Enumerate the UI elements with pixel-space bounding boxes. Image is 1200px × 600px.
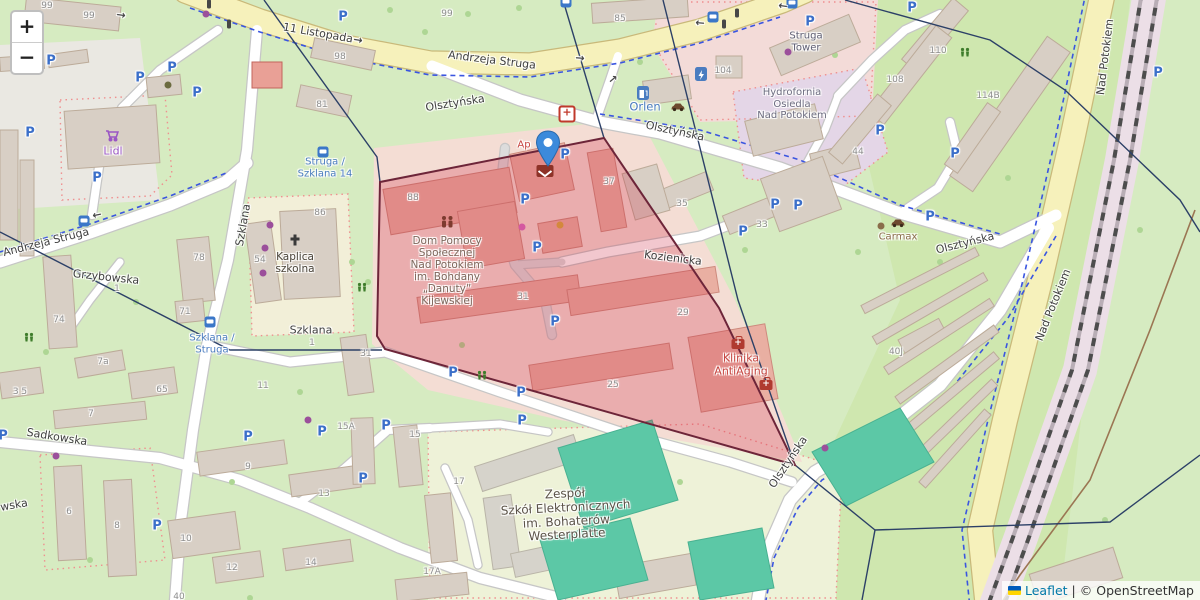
oneway-arrow-icon: → bbox=[695, 16, 705, 30]
house-number: 65 bbox=[156, 385, 167, 395]
parking-icon: P bbox=[516, 386, 526, 401]
poi-label: Ap bbox=[517, 139, 530, 151]
house-number: 13 bbox=[318, 489, 329, 499]
fuel-station-icon bbox=[637, 86, 649, 100]
church-cross-icon bbox=[294, 235, 297, 246]
house-number: 114B bbox=[976, 91, 999, 101]
playground-icon bbox=[24, 328, 35, 347]
parking-icon: P bbox=[520, 193, 530, 208]
street-label: Szklana bbox=[233, 203, 253, 247]
poi-dot bbox=[260, 270, 267, 277]
street-label: Nad Potokiem bbox=[1094, 18, 1116, 95]
map-canvas[interactable]: 11 ListopadaAndrzeja StrugaAndrzeja Stru… bbox=[0, 0, 1200, 600]
house-number: 14 bbox=[305, 558, 316, 568]
house-number: 98 bbox=[334, 52, 345, 62]
parking-icon: P bbox=[135, 71, 145, 86]
house-number: 6 bbox=[66, 507, 72, 517]
poi-label: Lidl bbox=[103, 146, 122, 159]
poi-dot bbox=[267, 222, 274, 229]
street-label: Olsztyńska bbox=[934, 229, 995, 256]
street-label: Olsztyńska bbox=[644, 118, 705, 143]
parking-icon: P bbox=[152, 519, 162, 534]
poi-label: Dom PomocySpołecznejNad Potokiemim. Bohd… bbox=[411, 235, 484, 307]
street-label: Andrzeja Struga bbox=[2, 225, 91, 259]
parking-icon: P bbox=[338, 10, 348, 25]
poi-label: ZespółSzkół Elektronicznychim. Bohaterów… bbox=[500, 484, 632, 546]
house-number: 8 bbox=[114, 521, 120, 531]
bus-stop-icon bbox=[708, 12, 719, 23]
poi-dot bbox=[203, 11, 210, 18]
house-number: 99 bbox=[41, 1, 52, 11]
street-label: Olsztyńska bbox=[425, 92, 486, 114]
parking-icon: P bbox=[805, 15, 815, 30]
street-label: Kozienicka bbox=[643, 248, 702, 268]
clinic-bag-icon: + bbox=[732, 339, 745, 349]
street-label: wska bbox=[0, 496, 29, 514]
oneway-arrow-icon: → bbox=[605, 71, 620, 87]
street-label: Nad Potokiem bbox=[1033, 267, 1074, 343]
parking-icon: P bbox=[1153, 66, 1163, 81]
attribution-separator: | bbox=[1072, 583, 1076, 598]
poi-dot bbox=[305, 417, 312, 424]
parking-icon: P bbox=[0, 429, 8, 444]
attribution-bar: Leaflet | © OpenStreetMap bbox=[1002, 581, 1200, 600]
poi-label: Struga /Szklana 14 bbox=[298, 157, 353, 180]
house-number: 17A bbox=[423, 567, 441, 577]
house-number: 29 bbox=[677, 308, 688, 318]
parking-icon: P bbox=[192, 86, 202, 101]
traffic-light-icon bbox=[735, 9, 739, 18]
oneway-arrow-icon: → bbox=[91, 208, 103, 223]
parking-icon: P bbox=[738, 225, 748, 240]
charging-station-icon bbox=[695, 67, 707, 81]
house-number: 54 bbox=[254, 255, 265, 265]
pharmacy-icon: + bbox=[559, 106, 576, 123]
poi-dot bbox=[785, 49, 792, 56]
house-number: 31 bbox=[517, 292, 528, 302]
car-repair-icon bbox=[891, 213, 906, 232]
house-number: 37 bbox=[603, 177, 614, 187]
house-number: 31 bbox=[360, 349, 371, 359]
house-number: 40J bbox=[889, 347, 903, 357]
parking-icon: P bbox=[358, 472, 368, 487]
bus-stop-icon bbox=[787, 0, 798, 9]
oneway-arrow-icon: → bbox=[352, 33, 363, 47]
traffic-light-icon bbox=[227, 20, 231, 29]
poi-dot bbox=[165, 82, 172, 89]
parking-icon: P bbox=[550, 315, 560, 330]
leaflet-link[interactable]: Leaflet bbox=[1025, 583, 1068, 598]
parking-icon: P bbox=[925, 210, 935, 225]
oneway-arrow-icon: → bbox=[575, 51, 585, 65]
house-number: 88 bbox=[407, 193, 418, 203]
parking-icon: P bbox=[950, 147, 960, 162]
house-number: 74 bbox=[53, 315, 64, 325]
street-label: 11 Listopada bbox=[282, 20, 354, 45]
house-number: 15A bbox=[337, 422, 355, 432]
street-label: Grzybowska bbox=[72, 267, 140, 287]
poi-dot bbox=[53, 453, 60, 460]
poi-dot bbox=[262, 245, 269, 252]
parking-icon: P bbox=[517, 414, 527, 429]
house-number: 1 bbox=[309, 338, 315, 348]
house-number: 10 bbox=[180, 534, 191, 544]
street-label: Olsztyńska bbox=[766, 434, 810, 491]
bus-stop-icon bbox=[79, 216, 90, 227]
clinic-bag-icon: + bbox=[760, 380, 773, 390]
poi-label: Kaplicaszkolna bbox=[275, 251, 314, 275]
openstreetmap-link[interactable]: © OpenStreetMap bbox=[1080, 583, 1194, 598]
house-number: 9 bbox=[245, 462, 251, 472]
house-number: 12 bbox=[226, 563, 237, 573]
poi-label: StrugaTower bbox=[789, 31, 822, 54]
traffic-light-icon bbox=[722, 20, 726, 29]
playground-icon bbox=[357, 278, 368, 297]
house-number: 33 bbox=[756, 220, 767, 230]
house-number: 78 bbox=[193, 253, 204, 263]
poi-label: KlinikaAntiAging bbox=[714, 352, 767, 377]
poi-label: HydroforniaOsiedlaNad Potokiem bbox=[757, 87, 826, 122]
house-number: 7 bbox=[88, 409, 94, 419]
marker-pin-icon bbox=[535, 130, 561, 168]
parking-icon: P bbox=[46, 54, 56, 69]
ukraine-flag-icon bbox=[1008, 586, 1021, 595]
supermarket-cart-icon bbox=[105, 127, 119, 146]
map-marker[interactable] bbox=[535, 130, 561, 172]
poi-label: Orlen bbox=[629, 100, 660, 113]
house-number: 81 bbox=[316, 100, 327, 110]
oneway-arrow-icon: → bbox=[116, 8, 127, 22]
house-number: 99 bbox=[441, 9, 452, 19]
poi-dot bbox=[519, 224, 526, 231]
house-number: 1 bbox=[114, 284, 120, 294]
traffic-light-icon bbox=[207, 0, 211, 9]
house-number: 3 5 bbox=[13, 387, 27, 397]
parking-icon: P bbox=[243, 430, 253, 445]
poi-label: Carmax bbox=[879, 231, 918, 243]
house-number: 44 bbox=[852, 147, 863, 157]
house-number: 104 bbox=[714, 66, 731, 76]
parking-icon: P bbox=[25, 126, 35, 141]
poi-dot bbox=[557, 222, 564, 229]
bus-stop-icon bbox=[561, 0, 572, 8]
house-number: 86 bbox=[314, 208, 325, 218]
house-number: 85 bbox=[614, 14, 625, 24]
house-number: 110 bbox=[929, 46, 946, 56]
playground-icon bbox=[477, 366, 488, 385]
street-label: Sadkowska bbox=[26, 426, 88, 448]
street-label: Szklana bbox=[290, 324, 333, 337]
bus-stop-icon bbox=[205, 317, 216, 328]
poi-dot bbox=[878, 223, 885, 230]
street-label: Andrzeja Struga bbox=[447, 48, 536, 72]
parking-icon: P bbox=[448, 366, 458, 381]
parking-icon: P bbox=[770, 198, 780, 213]
map-labels-layer: 11 ListopadaAndrzeja StrugaAndrzeja Stru… bbox=[0, 0, 1200, 600]
house-number: 11 bbox=[257, 381, 268, 391]
playground-icon bbox=[960, 43, 971, 62]
house-number: 40 bbox=[173, 592, 184, 600]
house-number: 25 bbox=[607, 380, 618, 390]
house-number: 108 bbox=[886, 75, 903, 85]
poi-label: Szklana /Struga bbox=[189, 333, 234, 356]
house-number: 17 bbox=[453, 477, 464, 487]
zoom-out-button[interactable]: − bbox=[12, 43, 42, 73]
parking-icon: P bbox=[317, 425, 327, 440]
zoom-control: + − bbox=[10, 10, 44, 75]
community-people-icon bbox=[439, 214, 455, 233]
car-repair-icon bbox=[671, 97, 686, 116]
bus-stop-icon bbox=[318, 147, 329, 158]
house-number: 7a bbox=[97, 357, 108, 367]
poi-dot bbox=[822, 445, 829, 452]
house-number: 71 bbox=[179, 307, 190, 317]
zoom-in-button[interactable]: + bbox=[12, 12, 42, 43]
house-number: 35 bbox=[676, 199, 687, 209]
parking-icon: P bbox=[793, 199, 803, 214]
parking-icon: P bbox=[907, 1, 917, 16]
parking-icon: P bbox=[560, 148, 570, 163]
parking-icon: P bbox=[92, 171, 102, 186]
house-number: 15 bbox=[409, 430, 420, 440]
parking-icon: P bbox=[532, 241, 542, 256]
parking-icon: P bbox=[875, 124, 885, 139]
house-number: 99 bbox=[83, 11, 94, 21]
parking-icon: P bbox=[167, 61, 177, 76]
parking-icon: P bbox=[381, 419, 391, 434]
